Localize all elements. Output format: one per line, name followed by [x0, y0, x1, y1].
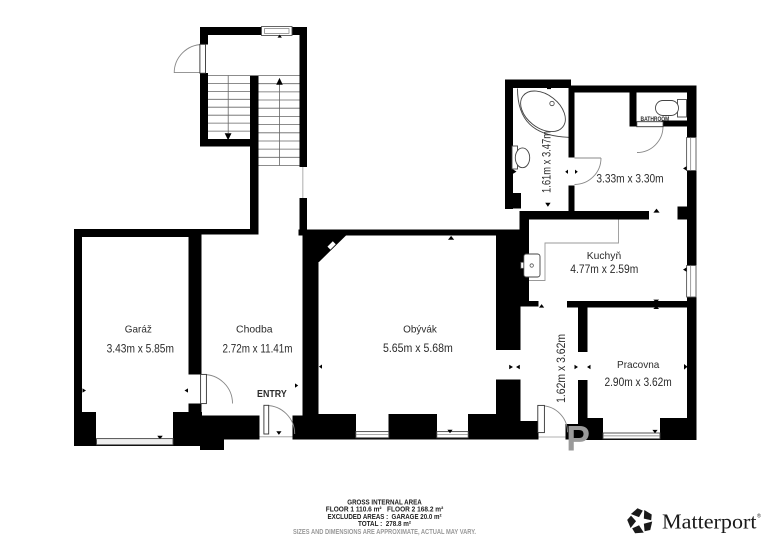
svg-text:®: ®	[757, 513, 761, 520]
svg-text:1.62m x 3.62m: 1.62m x 3.62m	[554, 334, 568, 403]
svg-text:4.77m x 2.59m: 4.77m x 2.59m	[570, 262, 638, 276]
svg-text:3.43m x 5.85m: 3.43m x 5.85m	[107, 342, 174, 356]
svg-text:2.72m x 11.41m: 2.72m x 11.41m	[223, 342, 293, 356]
svg-text:1.61m x 3.47m: 1.61m x 3.47m	[540, 131, 554, 193]
svg-text:3.33m x 3.30m: 3.33m x 3.30m	[596, 172, 663, 186]
svg-text:Garáž: Garáž	[125, 324, 152, 335]
svg-text:Obývák: Obývák	[403, 324, 438, 335]
svg-text:2.90m x 3.62m: 2.90m x 3.62m	[604, 375, 671, 389]
svg-text:Matterport: Matterport	[662, 509, 757, 533]
svg-text:SIZES AND DIMENSIONS ARE APPRO: SIZES AND DIMENSIONS ARE APPROXIMATE, AC…	[293, 527, 476, 536]
svg-text:P: P	[566, 418, 590, 458]
svg-text:Pracovna: Pracovna	[617, 360, 660, 371]
svg-text:5.65m x 5.68m: 5.65m x 5.68m	[383, 341, 453, 355]
svg-text:Chodba: Chodba	[236, 324, 273, 335]
svg-text:ENTRY: ENTRY	[257, 389, 287, 400]
svg-text:BATHROOM: BATHROOM	[641, 117, 670, 123]
svg-text:Kuchyň: Kuchyň	[587, 251, 622, 262]
